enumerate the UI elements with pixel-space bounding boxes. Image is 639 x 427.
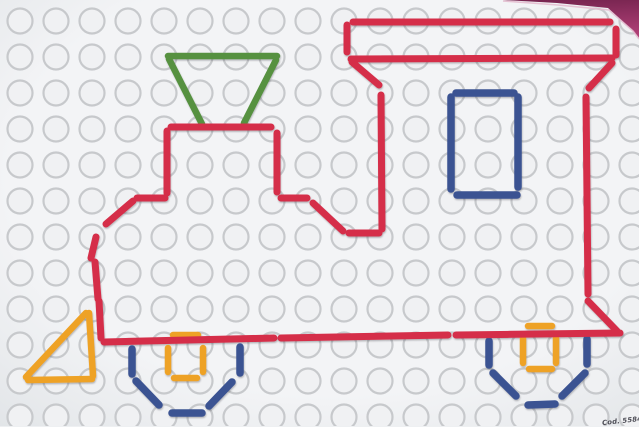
peg-hole xyxy=(296,9,321,34)
peg-hole xyxy=(260,225,285,250)
peg-hole xyxy=(44,297,69,322)
peg-hole xyxy=(116,117,141,142)
peg-hole xyxy=(440,261,465,286)
peg-hole xyxy=(548,225,573,250)
red-peg-stick xyxy=(351,58,612,59)
peg-hole xyxy=(548,117,573,142)
peg-hole xyxy=(440,369,465,394)
peg-hole xyxy=(332,297,357,322)
peg-hole xyxy=(332,261,357,286)
peg-hole xyxy=(368,297,393,322)
peg-hole xyxy=(80,189,105,214)
peg-hole xyxy=(620,81,639,106)
peg-hole xyxy=(368,261,393,286)
peg-hole xyxy=(224,225,249,250)
peg-hole xyxy=(8,189,33,214)
peg-hole xyxy=(44,189,69,214)
peg-hole xyxy=(224,153,249,178)
peg-hole xyxy=(296,297,321,322)
peg-hole xyxy=(8,45,33,70)
peg-hole xyxy=(8,81,33,106)
red-peg-stick xyxy=(99,301,101,338)
red-peg-stick xyxy=(281,335,448,338)
peg-hole xyxy=(116,153,141,178)
peg-hole xyxy=(332,117,357,142)
peg-hole xyxy=(44,153,69,178)
peg-hole xyxy=(548,297,573,322)
peg-hole xyxy=(404,117,429,142)
peg-hole xyxy=(224,297,249,322)
peg-hole xyxy=(620,189,639,214)
peg-hole xyxy=(440,225,465,250)
peg-hole xyxy=(260,261,285,286)
peg-hole xyxy=(332,189,357,214)
peg-hole xyxy=(8,9,33,34)
peg-hole xyxy=(224,81,249,106)
red-peg-stick xyxy=(381,95,382,229)
peg-hole xyxy=(260,405,285,427)
peg-hole xyxy=(8,153,33,178)
orange-peg-stick xyxy=(28,379,92,380)
peg-hole xyxy=(188,153,213,178)
orange-peg-stick xyxy=(89,313,93,376)
peg-hole xyxy=(296,369,321,394)
red-peg-stick xyxy=(91,237,96,258)
peg-hole xyxy=(8,297,33,322)
peg-hole xyxy=(620,153,639,178)
peg-hole xyxy=(440,297,465,322)
peg-hole xyxy=(620,117,639,142)
peg-hole xyxy=(512,261,537,286)
peg-hole xyxy=(116,261,141,286)
peg-hole xyxy=(296,261,321,286)
peg-hole xyxy=(512,297,537,322)
peg-hole xyxy=(296,225,321,250)
peg-hole xyxy=(620,369,639,394)
peg-hole xyxy=(116,297,141,322)
peg-hole xyxy=(80,405,105,427)
peg-hole xyxy=(260,369,285,394)
peg-hole xyxy=(44,405,69,427)
peg-hole xyxy=(620,45,639,70)
peg-hole xyxy=(476,153,501,178)
peg-hole xyxy=(404,153,429,178)
peg-hole xyxy=(296,117,321,142)
peg-hole xyxy=(44,81,69,106)
peg-hole xyxy=(116,225,141,250)
peg-hole xyxy=(80,117,105,142)
peg-hole xyxy=(548,189,573,214)
peg-hole xyxy=(224,261,249,286)
peg-hole xyxy=(44,117,69,142)
peg-hole xyxy=(296,45,321,70)
peg-hole xyxy=(296,153,321,178)
peg-hole xyxy=(8,333,33,358)
peg-hole xyxy=(152,9,177,34)
peg-hole xyxy=(476,297,501,322)
peg-hole xyxy=(404,261,429,286)
peg-hole xyxy=(116,9,141,34)
pegboard-card-photo: Cod. 5584 xyxy=(0,0,639,426)
peg-hole xyxy=(152,297,177,322)
peg-hole xyxy=(260,153,285,178)
peg-hole xyxy=(116,45,141,70)
peg-hole xyxy=(44,261,69,286)
peg-hole xyxy=(368,369,393,394)
peg-hole xyxy=(404,225,429,250)
peg-hole xyxy=(404,81,429,106)
peg-hole xyxy=(476,117,501,142)
peg-hole xyxy=(152,225,177,250)
peg-hole xyxy=(332,369,357,394)
peg-hole xyxy=(188,9,213,34)
peg-hole xyxy=(116,405,141,427)
peg-hole xyxy=(80,153,105,178)
peg-hole xyxy=(440,405,465,427)
peg-hole xyxy=(260,297,285,322)
red-peg-stick xyxy=(95,262,98,299)
peg-hole xyxy=(8,117,33,142)
peg-hole xyxy=(620,225,639,250)
peg-hole xyxy=(80,81,105,106)
peg-hole xyxy=(296,405,321,427)
red-peg-stick xyxy=(586,97,588,294)
red-peg-stick xyxy=(456,333,620,335)
peg-hole xyxy=(44,225,69,250)
peg-hole xyxy=(8,405,33,427)
peg-hole xyxy=(188,189,213,214)
peg-hole xyxy=(80,9,105,34)
peg-hole xyxy=(548,81,573,106)
peg-hole xyxy=(296,81,321,106)
peg-hole xyxy=(332,81,357,106)
peg-hole xyxy=(404,405,429,427)
peg-hole xyxy=(548,261,573,286)
peg-hole xyxy=(476,261,501,286)
peg-hole xyxy=(620,333,639,358)
peg-hole xyxy=(188,297,213,322)
peg-hole xyxy=(80,45,105,70)
peg-hole xyxy=(44,9,69,34)
peg-hole xyxy=(332,405,357,427)
peg-hole xyxy=(44,45,69,70)
peg-hole xyxy=(404,297,429,322)
pegboard-svg xyxy=(0,0,639,426)
peg-hole xyxy=(8,261,33,286)
peg-hole xyxy=(8,225,33,250)
peg-hole xyxy=(620,261,639,286)
peg-hole xyxy=(404,189,429,214)
peg-hole xyxy=(512,225,537,250)
peg-hole xyxy=(620,297,639,322)
peg-hole xyxy=(116,81,141,106)
peg-hole xyxy=(152,261,177,286)
peg-hole xyxy=(332,153,357,178)
red-peg-stick xyxy=(104,338,274,342)
peg-hole xyxy=(152,81,177,106)
peg-hole xyxy=(188,225,213,250)
peg-hole xyxy=(476,405,501,427)
peg-hole xyxy=(224,9,249,34)
peg-hole xyxy=(260,9,285,34)
peg-hole xyxy=(224,405,249,427)
peg-hole xyxy=(188,261,213,286)
peg-hole xyxy=(404,369,429,394)
peg-hole xyxy=(224,189,249,214)
peg-hole xyxy=(548,153,573,178)
peg-hole xyxy=(368,405,393,427)
peg-hole xyxy=(476,225,501,250)
blue-peg-stick xyxy=(528,404,555,405)
